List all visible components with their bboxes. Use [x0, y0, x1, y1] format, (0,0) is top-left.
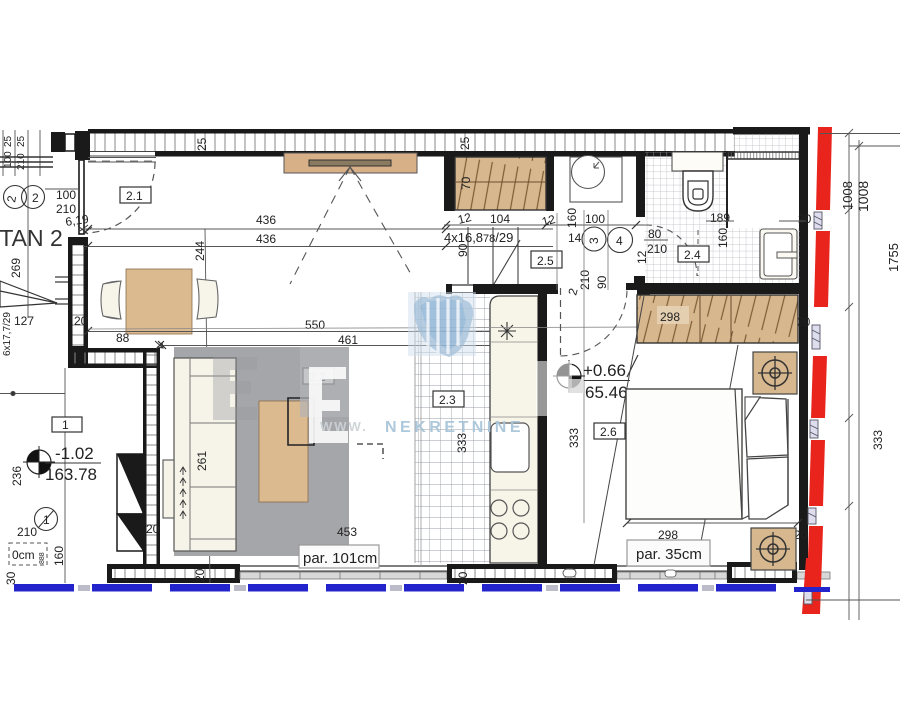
svg-text:65.46: 65.46 [585, 383, 628, 402]
svg-text:par. 35cm: par. 35cm [636, 546, 702, 563]
svg-text:333: 333 [567, 428, 581, 448]
svg-text:1008: 1008 [855, 181, 871, 212]
svg-text:20: 20 [798, 212, 812, 226]
svg-text:30: 30 [4, 571, 18, 585]
svg-text:25: 25 [16, 135, 27, 147]
svg-text:1755: 1755 [886, 243, 900, 272]
svg-text:WWW.: WWW. [320, 419, 368, 434]
svg-text:70: 70 [459, 176, 473, 190]
svg-text:104: 104 [490, 212, 510, 226]
svg-text:-1.02: -1.02 [55, 444, 94, 463]
svg-text:2.6: 2.6 [600, 425, 617, 439]
svg-text:90: 90 [595, 275, 609, 289]
svg-text:298: 298 [660, 310, 680, 324]
svg-text:20: 20 [193, 568, 207, 582]
svg-text:550: 550 [305, 318, 325, 332]
svg-text:0cm: 0cm [12, 548, 35, 562]
svg-text:2: 2 [32, 191, 39, 205]
svg-text:461: 461 [338, 333, 358, 347]
svg-text:+0.66: +0.66 [583, 361, 626, 380]
svg-text:236: 236 [10, 466, 24, 486]
svg-text:210: 210 [647, 242, 667, 256]
svg-text:25: 25 [3, 135, 14, 147]
svg-text:20: 20 [146, 522, 160, 536]
svg-text:80: 80 [648, 227, 662, 241]
svg-text:4: 4 [616, 234, 623, 248]
svg-text:20: 20 [456, 571, 470, 585]
svg-text:261: 261 [195, 451, 209, 471]
svg-text:6x17,7/29: 6x17,7/29 [2, 312, 13, 356]
svg-text:NEKRETNINE: NEKRETNINE [385, 419, 524, 436]
svg-text:436: 436 [256, 213, 276, 227]
svg-text:12: 12 [635, 250, 649, 264]
svg-text:par. 101cm: par. 101cm [303, 550, 377, 567]
svg-text:163.78: 163.78 [45, 465, 97, 484]
svg-text:25: 25 [458, 136, 472, 150]
svg-text:100: 100 [3, 151, 14, 168]
svg-text:1: 1 [43, 513, 50, 527]
svg-text:160: 160 [565, 208, 579, 228]
svg-text:269: 269 [9, 258, 23, 278]
svg-text:1: 1 [62, 418, 69, 432]
svg-text:3: 3 [587, 237, 601, 244]
svg-text:2.5: 2.5 [537, 254, 554, 268]
svg-text:127: 127 [14, 314, 34, 328]
svg-text:25: 25 [195, 137, 209, 151]
svg-text:2.3: 2.3 [439, 393, 456, 407]
svg-text:2.1: 2.1 [126, 189, 143, 203]
svg-text:436: 436 [256, 232, 276, 246]
svg-text:333: 333 [871, 430, 885, 450]
svg-text:20: 20 [74, 314, 88, 328]
svg-text:90: 90 [456, 243, 470, 257]
svg-text:4x16,878/29: 4x16,878/29 [444, 230, 513, 245]
svg-text:210: 210 [17, 525, 37, 539]
svg-text:210: 210 [578, 270, 592, 290]
svg-text:888: 888 [39, 552, 46, 564]
svg-text:20: 20 [797, 315, 811, 329]
svg-text:100: 100 [585, 212, 605, 226]
svg-text:453: 453 [337, 525, 357, 539]
svg-text:88: 88 [116, 331, 130, 345]
svg-text:189: 189 [710, 211, 730, 225]
svg-text:STAN 2: STAN 2 [0, 225, 63, 251]
svg-text:160: 160 [716, 228, 730, 248]
svg-text:2.4: 2.4 [684, 248, 701, 262]
svg-text:100: 100 [56, 188, 76, 202]
svg-text:1008: 1008 [840, 181, 855, 210]
svg-text:160: 160 [52, 546, 66, 566]
